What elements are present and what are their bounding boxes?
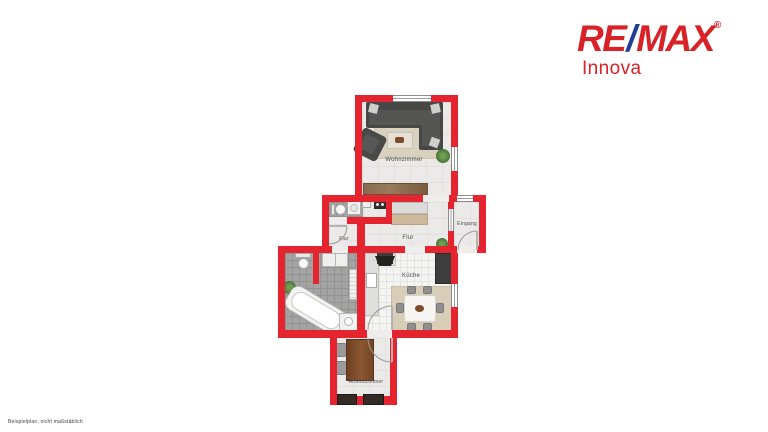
wall [479,195,486,253]
door-opening [367,330,392,338]
shower-divider [335,253,336,267]
remax-wordmark: RE/MAX® [577,20,721,57]
logo-re: RE [577,18,625,59]
wardrobe-top [391,202,428,214]
wall [390,338,397,405]
chair [396,303,404,313]
plant [436,149,450,163]
room-label-kueche: Küche [402,273,420,279]
window [457,195,473,202]
cooktop-dot [376,203,379,206]
chair [407,286,416,294]
floorplan-page: Wohnzimmer Flur Flur Eingang Küche Arbei… [0,0,768,432]
cooktop-dot [381,203,384,206]
table-decor [415,305,424,312]
entry-door-opening [457,246,477,253]
fridge [435,253,452,284]
room-label-eingang: Eingang [457,221,477,227]
desk [346,339,374,381]
room-flur-klein-floor [329,224,357,246]
wardrobe [391,214,428,225]
logo-slash: / [625,18,636,59]
wall-stub [313,253,319,284]
toilet [335,204,346,215]
toilet [298,258,309,269]
remax-logo: RE/MAX® Innova [577,20,721,80]
window [448,209,454,231]
wall [278,246,332,253]
logo-subtitle: Innova [577,58,721,80]
wall [392,330,458,338]
room-label-arbeitszimmer: Arbeitszimmer [349,379,384,385]
wall [330,338,337,405]
wall [322,195,329,253]
washing-machine-drum [350,204,358,212]
table-decor [395,137,404,143]
wall [322,195,423,202]
room-label-flur-klein: Flur [339,236,348,242]
kitchen-sink [366,273,377,288]
chair [423,286,432,294]
door-opening [332,246,348,253]
room-label-wohnzimmer: Wohnzimmer [385,157,422,163]
chair [436,303,444,313]
logo-max: MAX [636,18,714,59]
sideboard [363,183,428,195]
window-dark [337,394,357,405]
door-opening [329,217,347,224]
sofa-pillow [430,103,441,114]
radiator [349,269,357,300]
wall [357,217,365,338]
sink [344,317,353,326]
room-label-flur: Flur [402,235,413,241]
window-dark [363,394,384,405]
wall [477,246,486,253]
passage-opening [405,246,425,253]
window [393,95,431,102]
window [451,284,458,307]
window [451,147,458,171]
wall [278,246,285,338]
wall [278,330,367,338]
registered-mark: ® [714,20,721,31]
passage-opening [423,195,449,202]
disclaimer-text: Beispielplan, nicht maßstäblich [8,419,83,425]
wall [355,95,362,195]
